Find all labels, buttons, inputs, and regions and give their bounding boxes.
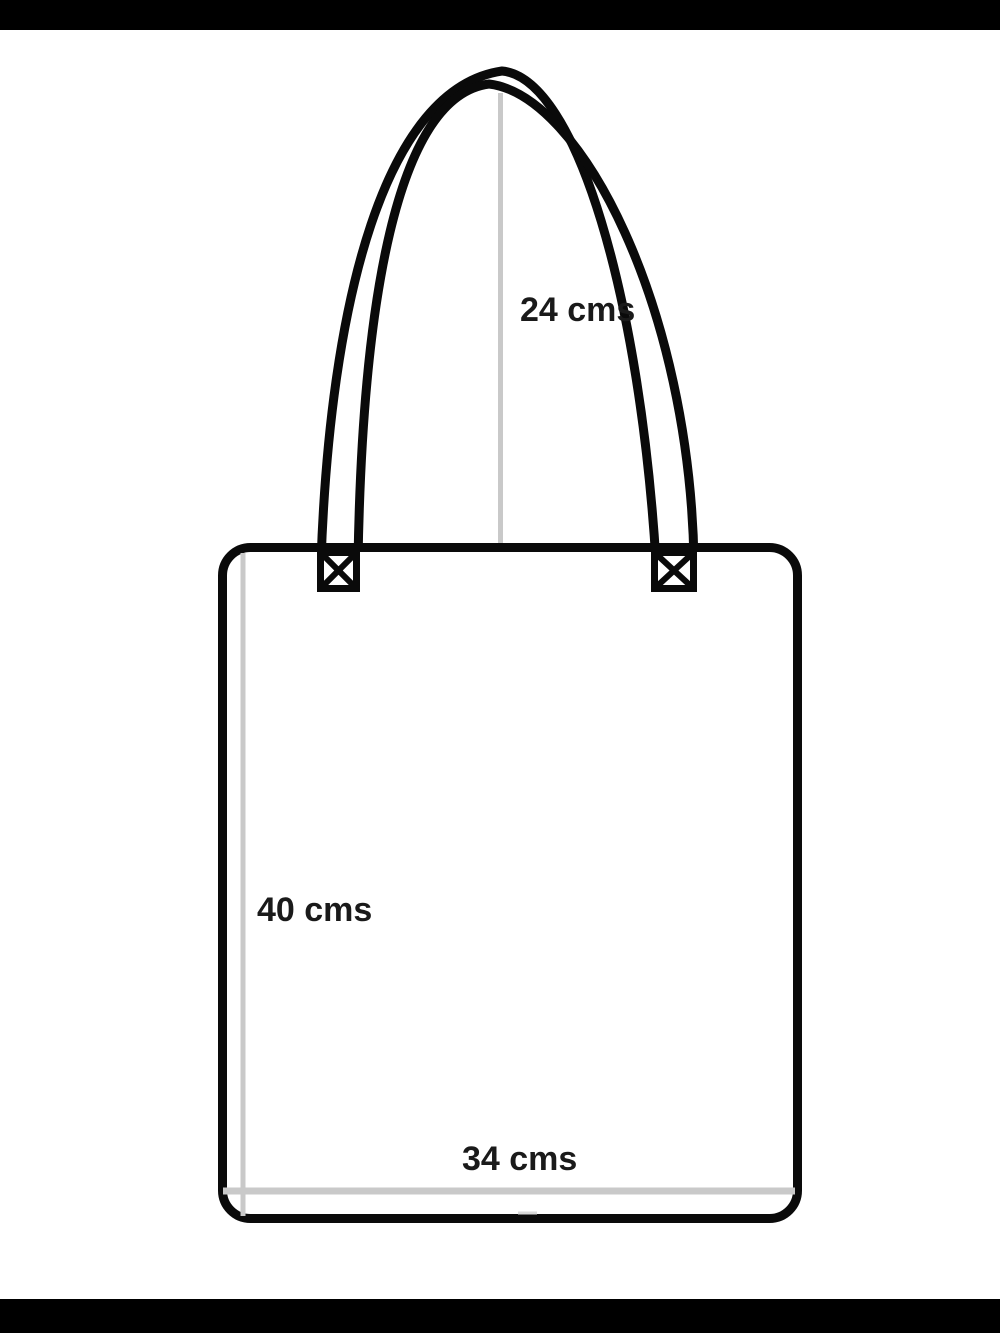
letterbox-bar-bottom xyxy=(0,1299,1000,1333)
label-bag-height: 40 cms xyxy=(257,893,372,927)
label-bag-width: 34 cms xyxy=(462,1142,577,1176)
stitch-box-right xyxy=(655,553,694,589)
tote-bag-pattern-diagram: 24 cms 40 cms 34 cms xyxy=(0,0,1000,1333)
bag-body-outline xyxy=(223,548,798,1219)
stitch-box-left xyxy=(321,553,357,589)
bag-diagram-svg xyxy=(0,0,1000,1333)
label-handle-height: 24 cms xyxy=(520,293,635,327)
